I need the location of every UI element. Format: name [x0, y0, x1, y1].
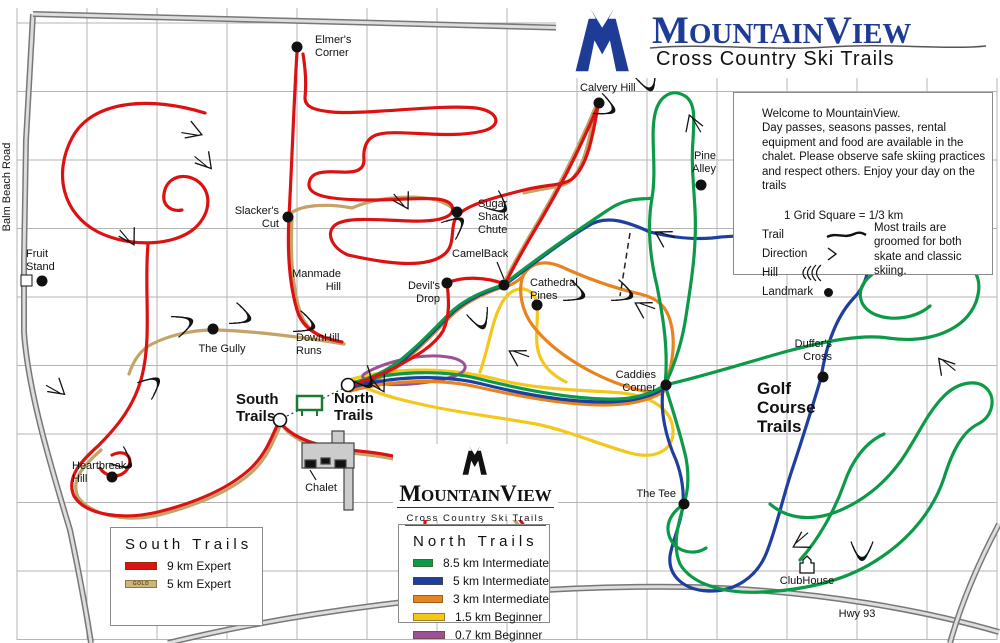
the-gully-dot [208, 324, 219, 335]
north-legend-title: North Trails [413, 533, 549, 550]
north-trails-legend: North Trails 8.5 km Intermediate5 km Int… [398, 524, 550, 623]
elmers-corner-dot [292, 42, 303, 53]
key-trail-label: Trail [762, 228, 824, 242]
logo-small-tagline: Cross Country Ski Trails [405, 512, 547, 526]
legend-item-label: 8.5 km Intermediate [443, 556, 549, 570]
welcome-text: Day passes, seasons passes, rental equip… [762, 121, 987, 193]
map-label: Slacker'sCut [235, 205, 280, 230]
legend-swatch: GOLD [125, 580, 157, 588]
map-label: Hwy 93 [839, 608, 876, 620]
map-label: DownHillRuns [296, 332, 339, 357]
legend-swatch [413, 559, 433, 567]
map-label: Balm Beach Road [1, 143, 13, 232]
legend-item: 8.5 km Intermediate [413, 556, 549, 570]
hill-marks-icon [851, 542, 873, 561]
legend-item: 3 km Intermediate [413, 592, 549, 606]
camelback-pointer-line [497, 262, 504, 279]
legend-item: 0.7 km Beginner [413, 628, 549, 642]
direction-arrow-icon [43, 375, 70, 402]
legend-item-label: 0.7 km Beginner [455, 628, 542, 642]
key-direction-label: Direction [762, 247, 824, 261]
fruit-stand-dot [37, 276, 48, 287]
mountain-icon [564, 4, 646, 74]
direction-arrow-icon [824, 246, 840, 262]
logo-tagline: Cross Country Ski Trails [656, 48, 895, 71]
south-legend-title: South Trails [125, 536, 262, 553]
map-label: The Tee [636, 488, 676, 500]
hill-marks-icon [171, 310, 196, 337]
ski-trail-map-page: Elmer'sCornerCalvery HillPineAlleySlacke… [0, 0, 1000, 643]
hwy-93-road [168, 524, 999, 643]
map-label: The Gully [198, 343, 246, 355]
map-label: ClubHouse [780, 575, 834, 587]
caddies-corner-dot [661, 380, 672, 391]
direction-arrow-icon [180, 119, 205, 143]
map-label: SouthTrails [236, 391, 279, 425]
calvery-hill-dot [594, 98, 605, 109]
south-trailhead-marker [274, 414, 287, 427]
fruit-stand-stand-icon [21, 275, 32, 286]
legend-item: 1.5 km Beginner [413, 610, 549, 624]
map-label: SugarShackChute [478, 198, 509, 236]
duffers-cross-dot [818, 372, 829, 383]
map-label: CathedralPines [530, 277, 578, 302]
mountainview-logo-small: MOUNTAINVIEW Cross Country Ski Trails [393, 444, 558, 520]
map-label: ManmadeHill [292, 268, 341, 293]
mountainview-logo: MOUNTAINVIEW Cross Country Ski Trails [556, 0, 1000, 78]
map-label: NorthTrails [334, 390, 374, 424]
heartbreak-hill-dot [107, 472, 118, 483]
map-label: Devil'sDrop [408, 280, 441, 305]
legend-item: 9 km Expert [125, 559, 262, 573]
camelback-dot [499, 280, 510, 291]
map-label: Elmer'sCorner [315, 34, 352, 59]
legend-item-label: 5 km Expert [167, 577, 231, 591]
key-landmark-label: Landmark [762, 285, 824, 299]
welcome-line: Welcome to MountainView. [762, 107, 987, 121]
devils-drop-dot [442, 278, 453, 289]
hill-marks-icon [611, 280, 636, 307]
map-label: PineAlley [692, 150, 716, 175]
map-label: FruitStand [26, 248, 55, 273]
north-legend-rows: 8.5 km Intermediate5 km Intermediate3 km… [399, 556, 549, 642]
legend-swatch [413, 613, 445, 621]
map-label: CamelBack [452, 248, 509, 260]
chalet-building [302, 431, 354, 510]
direction-arrow-icon [789, 529, 815, 555]
mountain-icon-small [458, 444, 494, 476]
dashed-connector [620, 233, 630, 296]
legend-swatch [413, 577, 443, 585]
legend-item-label: 1.5 km Beginner [455, 610, 542, 624]
legend-swatch [413, 631, 445, 639]
legend-item: 5 km Intermediate [413, 574, 549, 588]
south-legend-rows: 9 km ExpertGOLD5 km Expert [111, 559, 262, 591]
legend-swatch [125, 562, 157, 570]
legend-item-label: 3 km Intermediate [453, 592, 549, 606]
map-label: Calvery Hill [580, 82, 636, 94]
logo-small-wordmark: MOUNTAINVIEW [397, 481, 553, 508]
trail-line-icon [824, 229, 868, 241]
map-label: HeartbreakHill [72, 460, 127, 485]
map-label: CaddiesCorner [616, 369, 657, 394]
sugar-shack-chute-dot [452, 207, 463, 218]
legend-item-label: 5 km Intermediate [453, 574, 549, 588]
trail-sign-icon [297, 396, 322, 416]
direction-arrow-icon [932, 353, 959, 380]
welcome-info-box: Welcome to MountainView. Day passes, sea… [733, 92, 993, 275]
key-landmark-row: Landmark [762, 285, 980, 300]
map-label: Duffer'sCross [795, 338, 833, 363]
the-tee-dot [679, 499, 690, 510]
groomed-note: Most trails are groomed for both skate a… [874, 221, 989, 279]
legend-swatch [413, 595, 443, 603]
legend-item: GOLD5 km Expert [125, 577, 262, 591]
south-trails-legend: South Trails 9 km ExpertGOLD5 km Expert [110, 527, 263, 626]
map-label: Chalet [305, 482, 337, 494]
direction-arrow-icon [505, 343, 531, 369]
legend-item-label: 9 km Expert [167, 559, 231, 573]
slackers-cut-dot [283, 212, 294, 223]
hill-marks-icon [467, 307, 494, 332]
direction-arrow-icon [192, 147, 219, 174]
pine-alley-dot [696, 180, 707, 191]
hill-marks-icon [229, 303, 254, 330]
hill-marks-icon [796, 264, 826, 282]
landmark-dot-icon [824, 288, 833, 297]
direction-arrow-icon [116, 223, 142, 249]
key-hill-label: Hill [762, 266, 796, 280]
